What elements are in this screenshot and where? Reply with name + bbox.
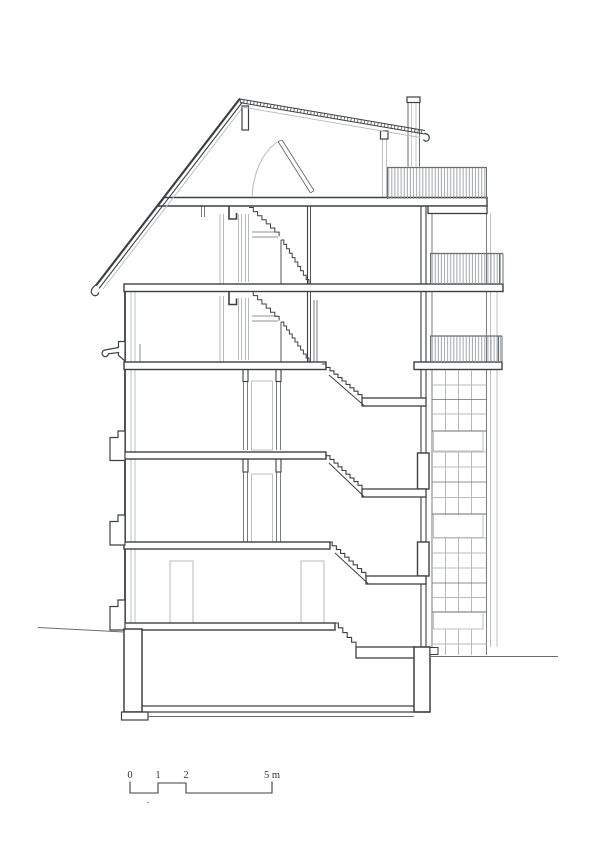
floor-slab xyxy=(124,284,503,292)
roof-right-hatch xyxy=(240,101,425,133)
foundation-wall-left xyxy=(124,629,142,712)
window-grid-upper xyxy=(432,371,487,432)
floor-slab xyxy=(124,452,326,459)
stair-flights xyxy=(229,206,368,647)
terrace-edge-beam xyxy=(428,206,487,214)
stair-landing xyxy=(366,576,426,584)
ground-floor-slab xyxy=(124,623,335,630)
door-portal xyxy=(243,370,281,451)
scale-bar-line xyxy=(130,782,272,794)
floor-slab xyxy=(124,542,330,549)
scale-label-0: 0 xyxy=(127,770,132,781)
basement xyxy=(122,629,439,720)
main-cornice-gutter xyxy=(102,342,125,362)
door-portal xyxy=(243,459,281,542)
landing-parapet xyxy=(418,542,430,576)
roof-left-slope xyxy=(96,99,240,286)
facade-cornices xyxy=(102,342,125,631)
drawing-sheet: 0 1 2 5 m xyxy=(0,0,600,848)
stray-mark xyxy=(147,802,149,804)
foundation-wall-right xyxy=(414,647,430,712)
terrace-post xyxy=(381,131,389,197)
balcony-railing xyxy=(430,336,502,362)
roof-terrace-railing xyxy=(387,168,487,200)
spandrel-panel xyxy=(434,432,484,452)
cornice-block xyxy=(110,431,125,461)
door xyxy=(301,561,324,623)
stair-landing xyxy=(362,398,426,406)
eaves-gutter-right xyxy=(424,134,430,142)
scale-label-2: 2 xyxy=(183,770,188,781)
ground-lines xyxy=(38,628,558,657)
landing-parapet xyxy=(418,453,430,489)
section-drawing: 0 1 2 5 m xyxy=(0,0,600,848)
attic-arched-window xyxy=(252,140,314,197)
stair-railing xyxy=(202,206,249,284)
stair-railing xyxy=(220,296,317,362)
floor-slab xyxy=(124,362,326,370)
foundation-step xyxy=(430,648,438,655)
scale-label-5m: 5 m xyxy=(264,770,280,781)
cornice-block xyxy=(110,600,125,630)
scale-label-1: 1 xyxy=(155,770,160,781)
scale-bar: 0 1 2 5 m xyxy=(127,770,280,803)
spandrel-panel xyxy=(434,515,484,538)
ridge-post xyxy=(242,106,249,130)
door xyxy=(170,561,193,623)
balcony-railings xyxy=(387,168,503,363)
balcony-slab xyxy=(414,362,502,370)
footing xyxy=(122,712,149,720)
lower-ground-slab xyxy=(356,647,416,658)
spandrel-panel xyxy=(434,613,484,630)
window-grid-base xyxy=(432,630,487,656)
stair-landing xyxy=(362,489,426,497)
balcony-railing xyxy=(430,254,503,285)
eaves-gutter-left xyxy=(91,284,98,296)
cornice-block xyxy=(110,515,125,545)
window-grid-middle xyxy=(432,452,487,514)
window-grid-lower xyxy=(432,538,487,612)
